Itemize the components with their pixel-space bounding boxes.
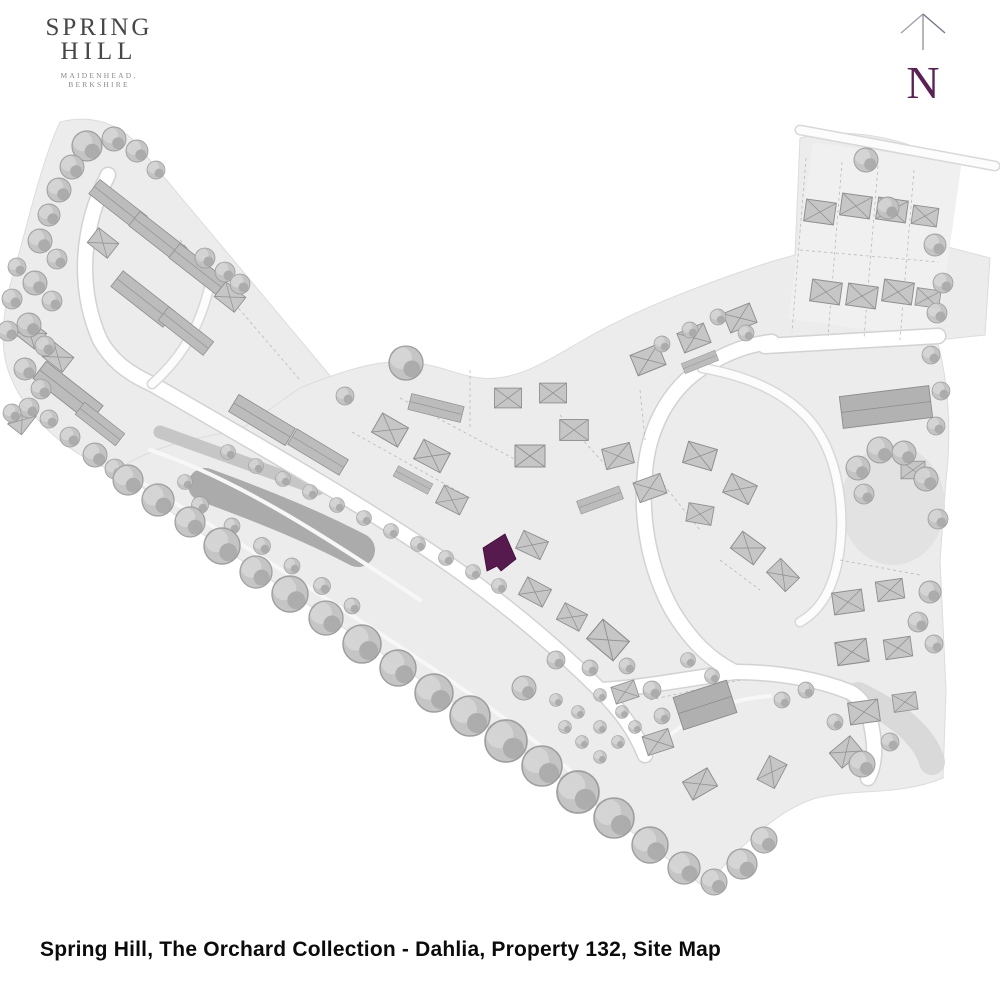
site-plan-image xyxy=(0,0,1000,1000)
north-compass: N xyxy=(883,6,963,110)
spring-hill-logo: SPRING HILL MAIDENHEAD, BERKSHIRE xyxy=(36,16,162,89)
logo-title-line1: SPRING xyxy=(36,16,162,40)
site-map-caption: Spring Hill, The Orchard Collection - Da… xyxy=(40,938,721,962)
logo-title-line2: HILL xyxy=(36,40,162,64)
north-arrow-icon xyxy=(901,14,945,50)
logo-tagline: MAIDENHEAD, BERKSHIRE xyxy=(36,71,162,89)
north-label: N xyxy=(906,57,939,108)
page: SPRING HILL MAIDENHEAD, BERKSHIRE N Spri… xyxy=(0,0,1000,1000)
